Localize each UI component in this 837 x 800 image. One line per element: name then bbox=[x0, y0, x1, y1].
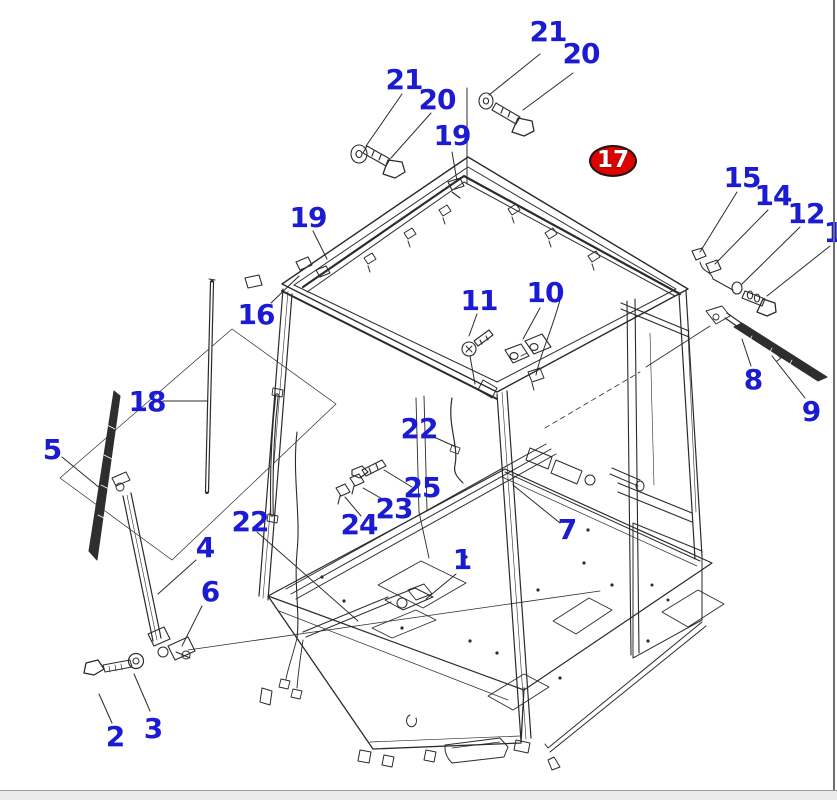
door-lock-mechanism bbox=[526, 448, 644, 491]
part-callout-11[interactable]: 11 bbox=[461, 287, 498, 315]
left-wiper-assembly bbox=[84, 391, 195, 675]
parts-diagram-canvas: 2120212019171514121191110161858922252324… bbox=[0, 0, 837, 800]
part-callout-6[interactable]: 6 bbox=[201, 578, 219, 606]
part-callout-21[interactable]: 21 bbox=[530, 18, 567, 46]
floor-base bbox=[268, 444, 724, 710]
part-callout-14[interactable]: 14 bbox=[755, 182, 792, 210]
part-callout-21[interactable]: 21 bbox=[386, 66, 423, 94]
floor-mechanism bbox=[372, 584, 436, 638]
right-wiper-assembly bbox=[706, 306, 827, 381]
part-callout-22[interactable]: 22 bbox=[232, 508, 269, 536]
page-right-border bbox=[833, 0, 835, 790]
cab-line-art bbox=[0, 0, 837, 800]
nozzle-parts bbox=[462, 330, 551, 363]
part-callout-7[interactable]: 7 bbox=[558, 516, 576, 544]
part-callout-10[interactable]: 10 bbox=[527, 279, 564, 307]
footer-strip bbox=[0, 790, 837, 800]
part-callout-19[interactable]: 19 bbox=[290, 204, 327, 232]
part-callout-3[interactable]: 3 bbox=[144, 715, 162, 743]
part-callout-4[interactable]: 4 bbox=[196, 534, 214, 562]
part-callout-5[interactable]: 5 bbox=[43, 436, 61, 464]
part-callout-23[interactable]: 23 bbox=[376, 495, 413, 523]
roof-wiring-harness-17 bbox=[303, 176, 680, 390]
part-callout-19[interactable]: 19 bbox=[434, 122, 471, 150]
leader-lines bbox=[62, 54, 830, 723]
part-callout-12[interactable]: 12 bbox=[788, 200, 825, 228]
support-rod-18 bbox=[207, 279, 215, 492]
part-callout-24[interactable]: 24 bbox=[341, 511, 378, 539]
part-callout-18[interactable]: 18 bbox=[129, 388, 166, 416]
part-callout-8[interactable]: 8 bbox=[744, 366, 762, 394]
right-clips-bolt bbox=[692, 248, 776, 316]
part-callout-22[interactable]: 22 bbox=[401, 415, 438, 443]
part-callout-1[interactable]: 1 bbox=[824, 219, 837, 247]
part-callout-20[interactable]: 20 bbox=[563, 40, 600, 68]
part-callout-2[interactable]: 2 bbox=[106, 723, 124, 751]
part-callout-9[interactable]: 9 bbox=[802, 398, 820, 426]
part-callout-1[interactable]: 1 bbox=[453, 546, 471, 574]
part-callout-16[interactable]: 16 bbox=[238, 301, 275, 329]
part-callout-20[interactable]: 20 bbox=[419, 86, 456, 114]
part-callout-17-selected[interactable]: 17 bbox=[589, 145, 637, 177]
interior-clips bbox=[336, 398, 463, 504]
